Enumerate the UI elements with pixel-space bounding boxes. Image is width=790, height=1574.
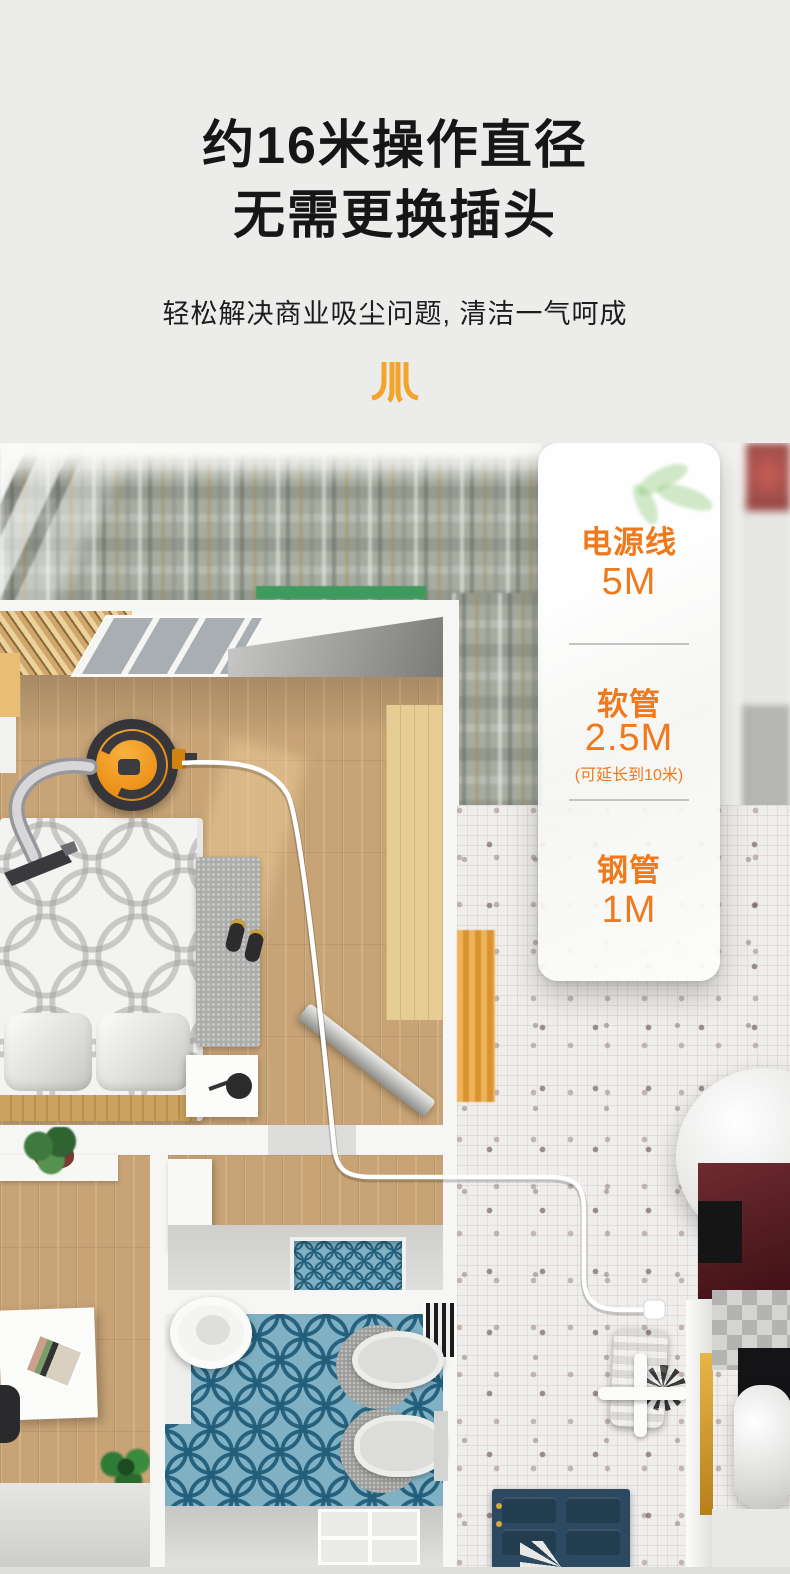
card-divider [569, 643, 689, 645]
spec-card: 电源线 5M 软管 2.5M (可延长到10米) 钢管 1M [538, 443, 720, 981]
spec-value-power-cord: 5M [538, 561, 720, 604]
card-divider [569, 799, 689, 801]
spec-note-hose: (可延长到10米) [538, 761, 720, 785]
power-plug [644, 1300, 665, 1319]
page: 约16米操作直径 无需更换插头 轻松解决商业吸尘问题, 清洁一气呵成 [0, 0, 790, 1574]
page-title-line1: 约16米操作直径 [0, 118, 790, 175]
floorplan-render: 电源线 5M 软管 2.5M (可延长到10米) 钢管 1M [0, 443, 790, 1574]
spec-label-power-cord: 电源线 [538, 517, 720, 562]
vacuum-hose-highlight [17, 766, 90, 857]
spec-value-hose: 2.5M [538, 717, 720, 760]
photo-bottom-edge [0, 1567, 790, 1574]
leaf-decoration [654, 479, 715, 516]
page-subtitle: 轻松解决商业吸尘问题, 清洁一气呵成 [0, 292, 790, 331]
spec-label-steel-tube: 钢管 [538, 845, 720, 890]
page-title-line2: 无需更换插头 [0, 188, 790, 245]
spec-value-steel-tube: 1M [538, 889, 720, 932]
brand-mark-icon [368, 358, 422, 404]
